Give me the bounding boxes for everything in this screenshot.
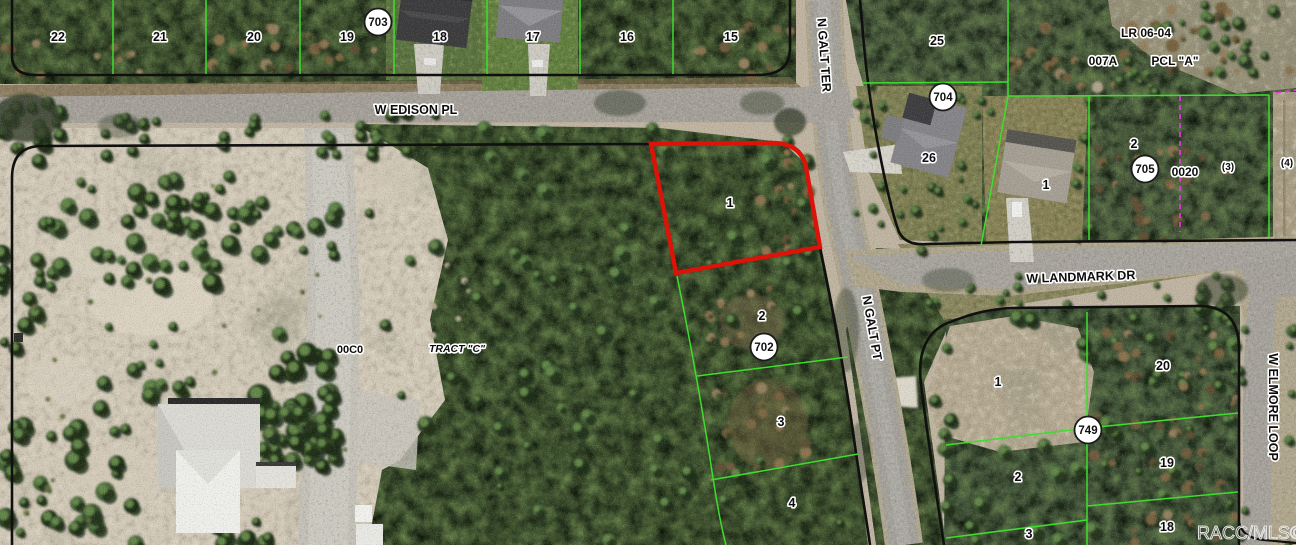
svg-text:702: 702	[754, 342, 773, 354]
svg-text:705: 705	[1135, 164, 1155, 176]
svg-text:19: 19	[1160, 456, 1174, 470]
svg-text:26: 26	[922, 151, 936, 165]
svg-text:(4): (4)	[1281, 158, 1293, 169]
svg-text:20: 20	[1156, 359, 1170, 373]
svg-text:007A: 007A	[1089, 54, 1118, 68]
svg-text:18: 18	[1160, 520, 1174, 534]
svg-text:LR 06-04: LR 06-04	[1121, 26, 1171, 40]
svg-text:21: 21	[153, 30, 167, 44]
svg-text:(3): (3)	[1222, 162, 1234, 173]
svg-text:22: 22	[51, 30, 65, 44]
svg-text:19: 19	[340, 30, 354, 44]
svg-text:17: 17	[526, 30, 540, 44]
svg-text:1: 1	[995, 375, 1002, 389]
svg-text:25: 25	[930, 34, 944, 48]
svg-text:15: 15	[724, 30, 738, 44]
svg-text:16: 16	[620, 30, 634, 44]
svg-text:TRACT "C": TRACT "C"	[429, 343, 486, 355]
svg-text:2: 2	[1131, 137, 1138, 151]
svg-text:PCL "A": PCL "A"	[1151, 54, 1198, 68]
svg-text:704: 704	[933, 92, 953, 104]
svg-text:RACC/MLS©: RACC/MLS©	[1197, 523, 1296, 543]
svg-text:2: 2	[1015, 470, 1022, 484]
svg-text:3: 3	[778, 415, 785, 429]
svg-text:18: 18	[433, 30, 447, 44]
svg-text:2: 2	[759, 309, 766, 323]
svg-text:703: 703	[368, 17, 387, 29]
svg-text:1: 1	[726, 195, 733, 210]
svg-text:3: 3	[1026, 527, 1033, 541]
svg-text:4: 4	[789, 496, 796, 510]
svg-text:W ELMORE LOOP: W ELMORE LOOP	[1266, 353, 1280, 461]
svg-text:00C0: 00C0	[337, 344, 363, 356]
svg-text:W EDISON PL: W EDISON PL	[375, 103, 458, 117]
svg-text:20: 20	[247, 30, 261, 44]
svg-text:1: 1	[1043, 178, 1050, 192]
svg-text:0020: 0020	[1172, 165, 1199, 179]
svg-text:749: 749	[1078, 425, 1097, 437]
